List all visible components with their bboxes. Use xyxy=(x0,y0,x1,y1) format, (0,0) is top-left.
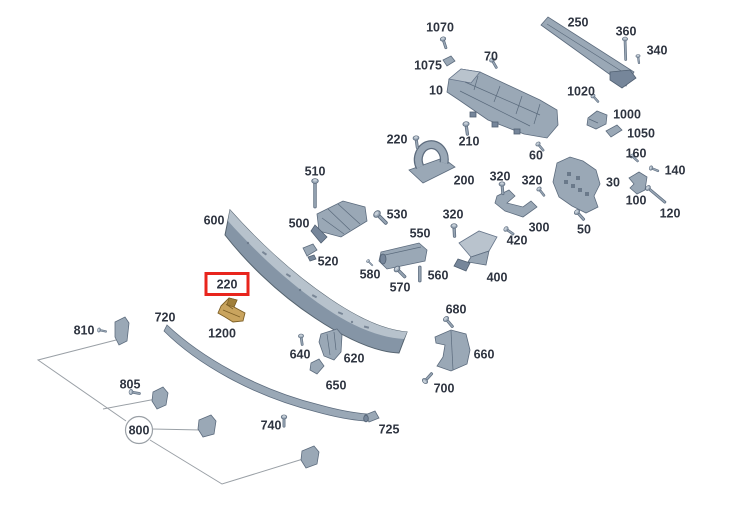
bolt-810 xyxy=(97,328,107,334)
bolt-700 xyxy=(421,371,434,385)
part-label-210[interactable]: 210 xyxy=(459,135,480,149)
part-label-1000[interactable]: 1000 xyxy=(613,108,641,122)
part-label-550[interactable]: 550 xyxy=(410,227,431,241)
part-label-1020[interactable]: 1020 xyxy=(567,85,595,99)
part-label-570[interactable]: 570 xyxy=(390,281,411,295)
part-1000-spacer[interactable] xyxy=(587,111,607,129)
part-label-1200[interactable]: 1200 xyxy=(208,327,236,341)
part-label-200[interactable]: 200 xyxy=(454,174,475,188)
part-label-30[interactable]: 30 xyxy=(606,176,620,190)
part-label-420[interactable]: 420 xyxy=(507,234,528,248)
pin-560 xyxy=(419,266,422,282)
part-label-600[interactable]: 600 xyxy=(204,214,225,228)
part-label-60[interactable]: 60 xyxy=(529,149,543,163)
part-label-520[interactable]: 520 xyxy=(318,255,339,269)
part-label-800[interactable]: 800 xyxy=(129,424,150,438)
part-label-560[interactable]: 560 xyxy=(428,269,449,283)
part-label-805[interactable]: 805 xyxy=(120,378,141,392)
part-label-10[interactable]: 10 xyxy=(429,84,443,98)
part-label-660[interactable]: 660 xyxy=(474,348,495,362)
bolt-1070 xyxy=(440,36,449,49)
part-660-shield[interactable] xyxy=(435,330,470,371)
part-400-bracket[interactable] xyxy=(454,231,497,271)
bolt-680 xyxy=(442,315,455,329)
part-label-140[interactable]: 140 xyxy=(665,164,686,178)
part-label-640[interactable]: 640 xyxy=(290,348,311,362)
part-label-400[interactable]: 400 xyxy=(487,271,508,285)
exploded-view-svg: 1070250360340701075101020100010502202106… xyxy=(0,0,739,512)
part-label-100[interactable]: 100 xyxy=(626,194,647,208)
part-label-530[interactable]: 530 xyxy=(387,208,408,222)
part-10-upper-panel[interactable] xyxy=(447,69,558,138)
part-810-clip[interactable] xyxy=(115,317,129,345)
part-label-620[interactable]: 620 xyxy=(344,352,365,366)
part-805-clip[interactable] xyxy=(152,387,168,409)
part-800-clip-a[interactable] xyxy=(198,415,216,437)
part-650-clip[interactable] xyxy=(310,359,324,374)
part-label-70[interactable]: 70 xyxy=(484,50,498,64)
part-label-680[interactable]: 680 xyxy=(446,303,467,317)
part-label-510[interactable]: 510 xyxy=(305,165,326,179)
bolt-580 xyxy=(366,259,374,267)
bolt-320-b xyxy=(536,186,547,198)
bolt-740 xyxy=(281,415,287,427)
bolt-120 xyxy=(645,185,668,205)
part-label-300[interactable]: 300 xyxy=(529,221,550,235)
bolt-570 xyxy=(393,265,408,280)
part-1075-clip[interactable] xyxy=(443,56,455,66)
part-label-1050[interactable]: 1050 xyxy=(627,127,655,141)
part-label-340[interactable]: 340 xyxy=(647,44,668,58)
part-label-250[interactable]: 250 xyxy=(568,16,589,30)
part-label-320[interactable]: 320 xyxy=(522,174,543,188)
part-800-clip-b[interactable] xyxy=(301,446,319,468)
part-520-clip[interactable] xyxy=(303,244,317,261)
part-label-1070[interactable]: 1070 xyxy=(426,21,454,35)
part-label-650[interactable]: 650 xyxy=(326,379,347,393)
bolt-510 xyxy=(312,179,319,208)
part-label-220[interactable]: 220 xyxy=(217,278,238,292)
part-725-buffer[interactable] xyxy=(364,411,379,422)
part-label-1075[interactable]: 1075 xyxy=(414,59,442,73)
part-label-580[interactable]: 580 xyxy=(360,268,381,282)
bolt-640 xyxy=(298,334,305,346)
part-1200-highlighted-clamp[interactable] xyxy=(218,298,245,322)
parts-diagram-canvas: 1070250360340701075101020100010502202106… xyxy=(0,0,739,512)
part-label-220[interactable]: 220 xyxy=(387,133,408,147)
part-200-arch-bracket[interactable] xyxy=(409,145,455,183)
part-30-bracket-cluster[interactable] xyxy=(553,157,600,213)
bolt-140 xyxy=(649,165,660,173)
part-label-720[interactable]: 720 xyxy=(155,311,176,325)
part-label-500[interactable]: 500 xyxy=(289,217,310,231)
part-500-mount-bracket[interactable] xyxy=(311,201,367,243)
part-300-z-bracket[interactable] xyxy=(495,190,537,217)
part-label-120[interactable]: 120 xyxy=(660,207,681,221)
part-100-clip[interactable] xyxy=(629,172,647,194)
callout-labels: 1070250360340701075101020100010502202106… xyxy=(74,16,686,444)
part-label-320[interactable]: 320 xyxy=(443,208,464,222)
part-label-810[interactable]: 810 xyxy=(74,324,95,338)
part-label-320[interactable]: 320 xyxy=(490,170,511,184)
part-1050-clip[interactable] xyxy=(606,125,622,137)
part-label-740[interactable]: 740 xyxy=(261,419,282,433)
part-label-700[interactable]: 700 xyxy=(434,382,455,396)
bolt-320-c xyxy=(451,224,458,238)
part-label-160[interactable]: 160 xyxy=(626,147,647,161)
bolt-360 xyxy=(622,37,628,61)
callout-leader-lines xyxy=(38,339,303,484)
bolt-340 xyxy=(636,54,642,64)
part-550-tube[interactable] xyxy=(379,243,427,269)
part-label-725[interactable]: 725 xyxy=(379,423,400,437)
part-label-360[interactable]: 360 xyxy=(616,25,637,39)
part-620-plate[interactable] xyxy=(319,329,342,360)
part-label-50[interactable]: 50 xyxy=(577,223,591,237)
